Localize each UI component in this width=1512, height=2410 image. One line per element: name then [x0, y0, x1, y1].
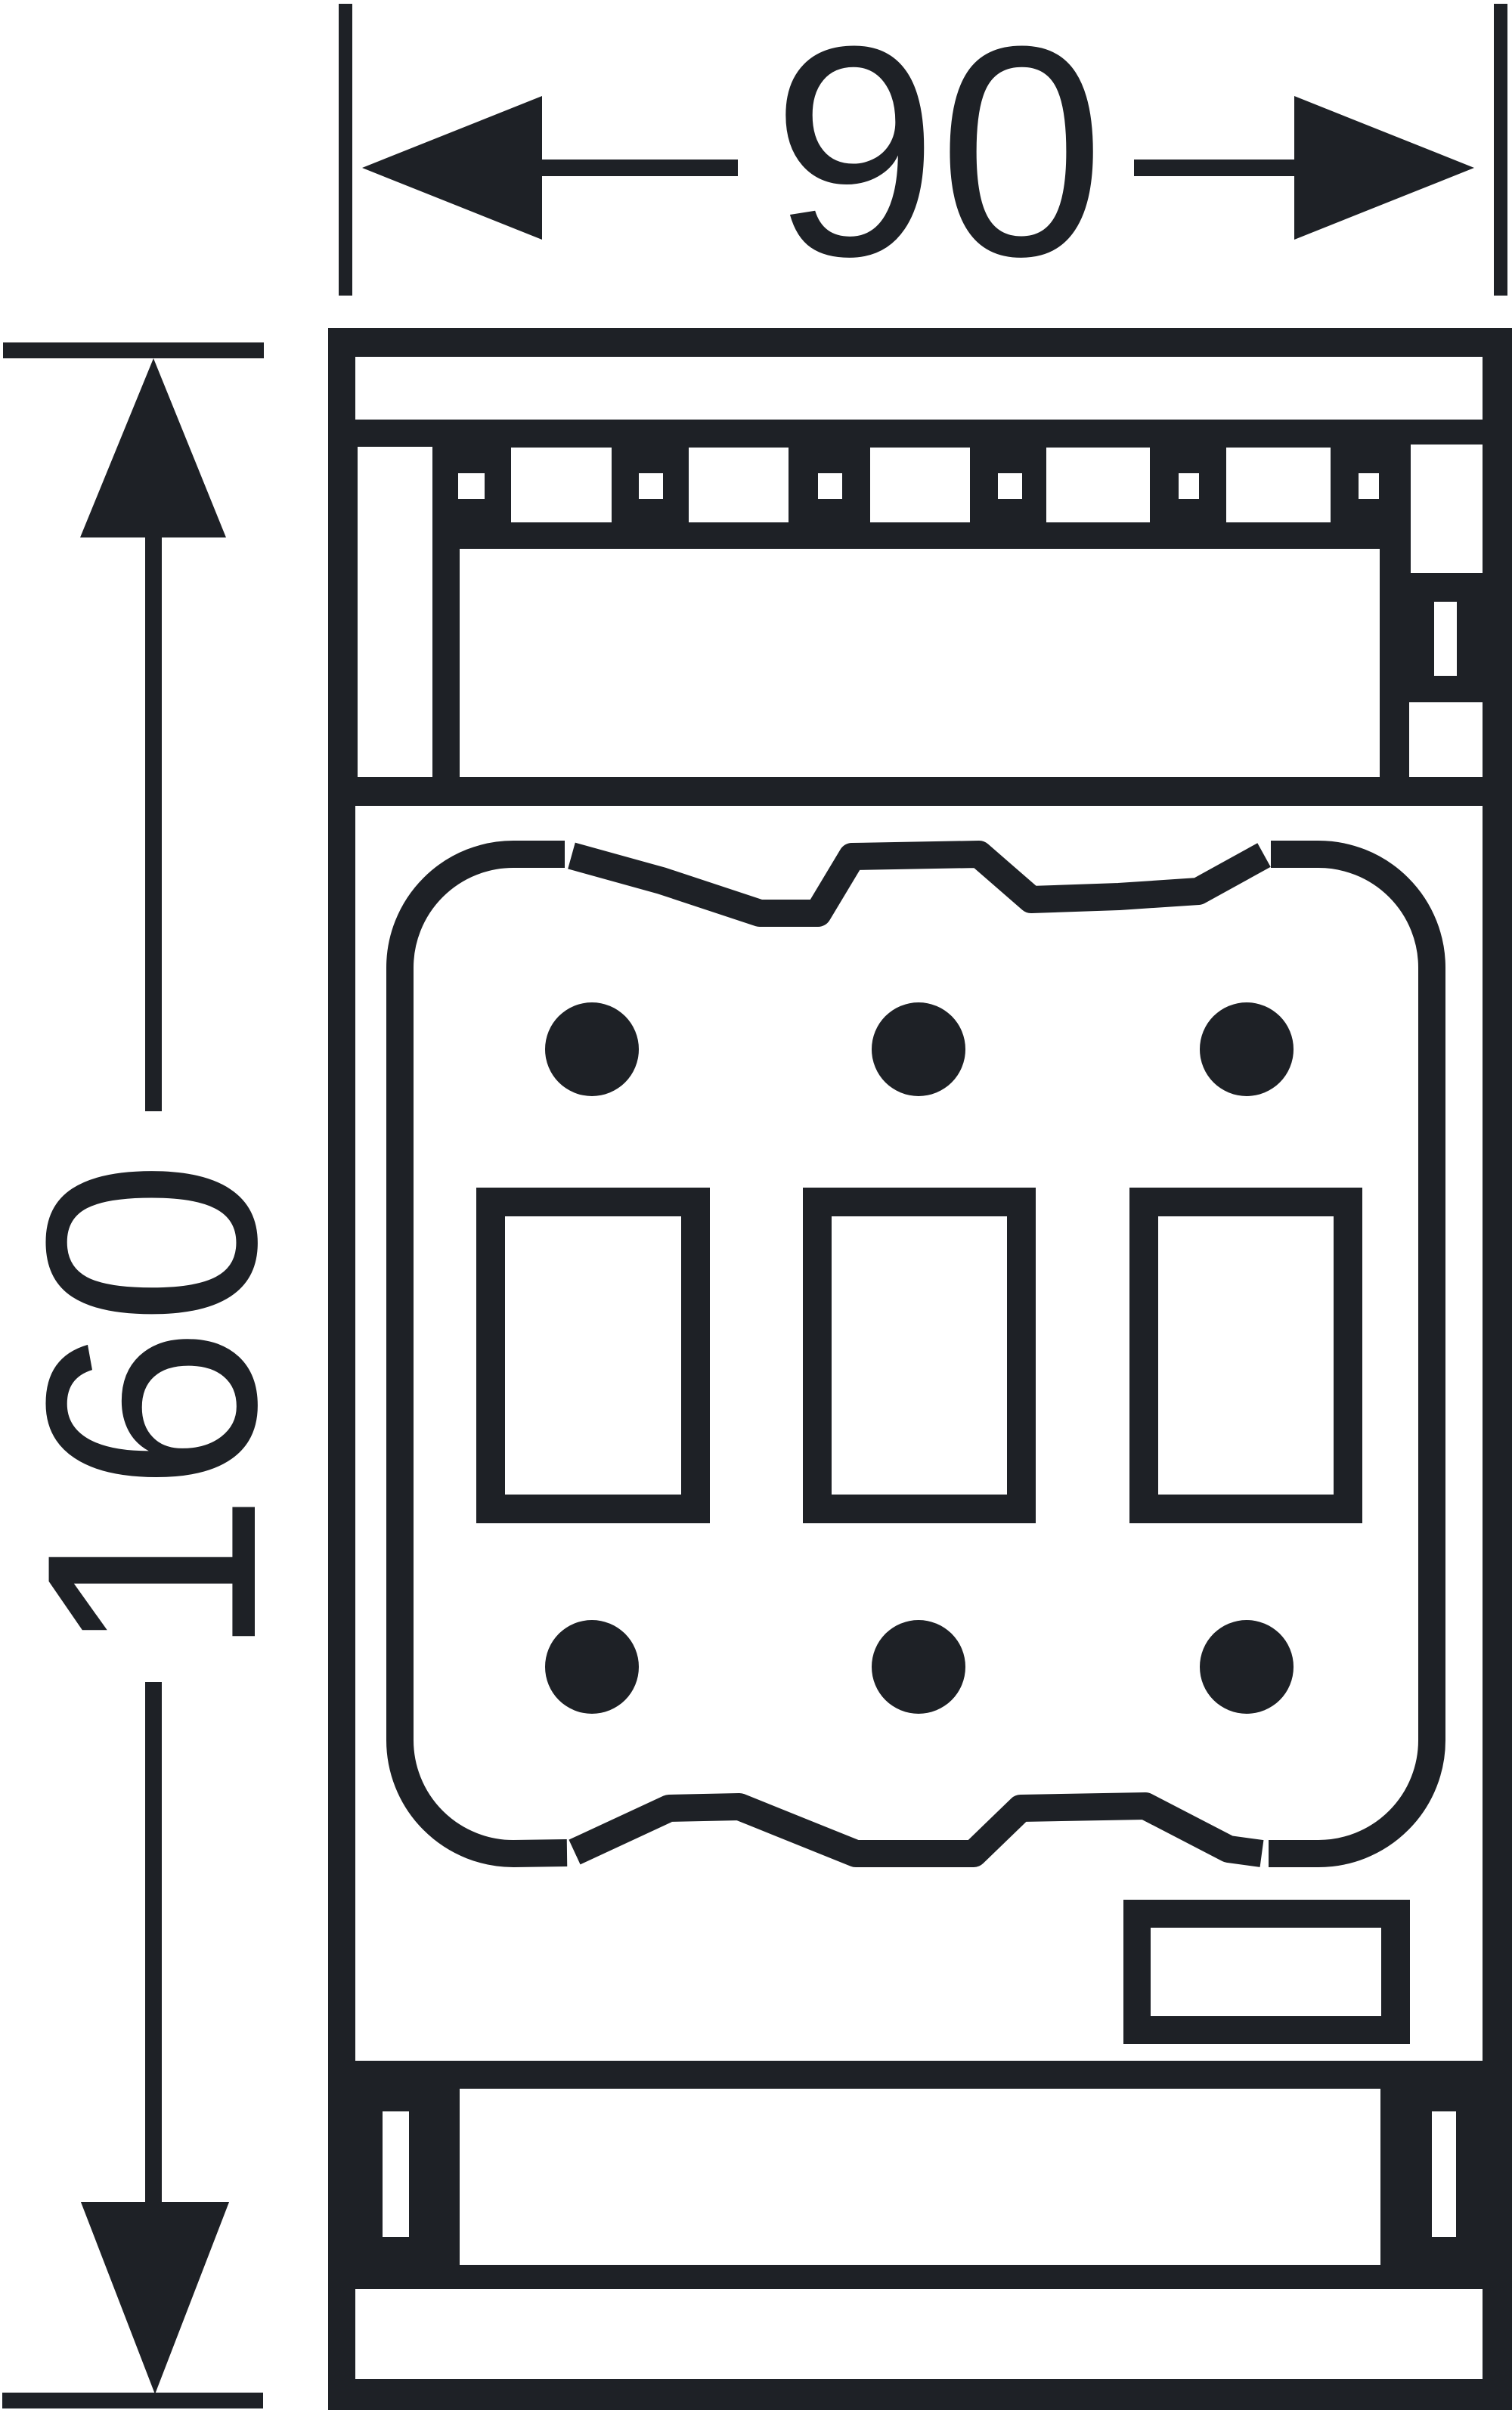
svg-text:160: 160	[0, 1160, 318, 1659]
svg-text:90: 90	[772, 0, 1105, 318]
